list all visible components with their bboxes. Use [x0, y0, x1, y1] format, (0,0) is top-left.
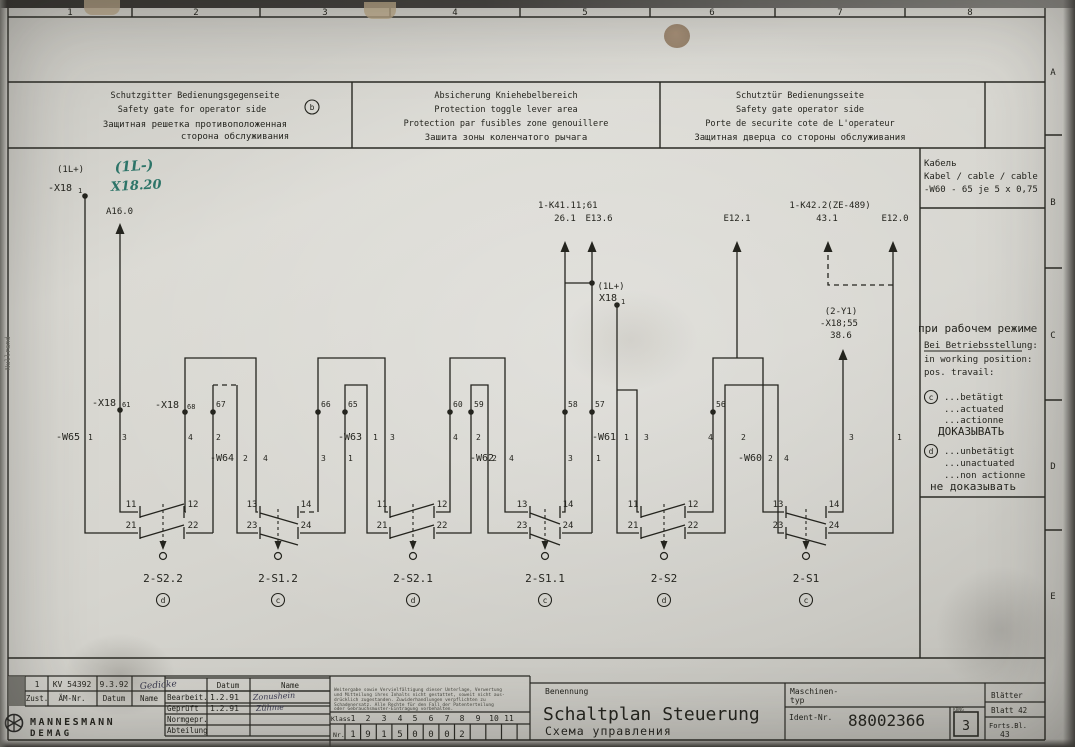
contact-label: 24 — [829, 521, 840, 531]
badge-b: b — [310, 103, 315, 112]
contact-label: 21 — [126, 521, 137, 531]
mid-1lplus-label: (1L+) — [597, 282, 624, 292]
ruler-number: 4 — [452, 8, 457, 18]
klass-number: 6 — [429, 714, 434, 723]
forts-value: 43 — [1000, 730, 1010, 739]
header1-de: Schutzgitter Bedienungsgegenseite — [111, 91, 280, 101]
core-label: 4 — [509, 454, 514, 463]
nr-digit: 0 — [428, 730, 433, 740]
mid-x18-label: X18 — [599, 293, 617, 304]
blaetter-label: Blätter — [991, 691, 1023, 700]
contact-label: 13 — [773, 500, 784, 510]
header3-fr: Porte de securite cote de L'operateur — [705, 119, 894, 129]
core-label: 1 — [348, 454, 353, 463]
header2-de: Absicherung Kniehebelbereich — [434, 91, 577, 101]
a16-label: A16.0 — [106, 207, 133, 217]
handwritten-annotation: (1L-) X18.20 — [109, 157, 162, 195]
cable-labels: -W65 1 3 4 2 -W64 2 4 3 1 -W63 1 3 4 2 -… — [56, 432, 902, 464]
row-letter: D — [1050, 462, 1055, 472]
contact-label: 13 — [517, 500, 528, 510]
switch-name: 2-S1 — [793, 572, 820, 585]
contact-label: 22 — [188, 521, 199, 531]
contact-label: 21 — [377, 521, 388, 531]
row-bearbeit: Bearbeit. — [167, 693, 208, 702]
klass-number: 5 — [413, 714, 418, 723]
header3-ru: Защитная дверца со стороны обслуживания — [694, 132, 905, 143]
terminal-x18-61-sub: 61 — [122, 401, 130, 409]
k41-dest: 26.1 — [554, 214, 576, 224]
handwritten-1l-minus: (1L-) — [114, 157, 154, 176]
switch-state: d — [662, 596, 667, 605]
header-zust: Zust. — [26, 694, 49, 703]
y1-terminal: -X18;55 — [820, 319, 858, 329]
legend-title-en: in working position: — [924, 355, 1032, 365]
company-logo: MANNESMANN DEMAG — [6, 715, 116, 740]
supply-x18-sub: 1 — [78, 187, 82, 195]
klass-number: 7 — [445, 714, 450, 723]
ruler-number: 1 — [67, 8, 72, 18]
ident-label: Ident-Nr. — [789, 713, 832, 722]
circuit-dashed-wires — [213, 250, 893, 512]
revision-number: KV 54392 — [53, 680, 92, 689]
frame-lines — [8, 7, 1062, 740]
contact-label: 24 — [563, 521, 574, 531]
header-box-3: Schutztür Bedienungsseite Safety gate op… — [694, 91, 905, 143]
cable-w64: -W64 — [210, 453, 234, 464]
terminal-57: 57 — [595, 400, 605, 409]
terminal-65: 65 — [348, 400, 358, 409]
stamp-number: 3 — [962, 719, 970, 734]
row-letter: E — [1050, 592, 1055, 602]
core-label: 2 — [216, 433, 221, 442]
header-datum: Datum — [103, 694, 126, 703]
ident-number: 88002366 — [848, 711, 925, 730]
ruler-number: 3 — [322, 8, 327, 18]
k41-label: 1-K41.11;61 — [538, 201, 598, 211]
core-label: 3 — [568, 454, 573, 463]
core-label: 1 — [596, 454, 601, 463]
cable-w62: -W62 — [470, 453, 494, 464]
core-label: 2 — [492, 454, 497, 463]
cable-note-multi: Kabel / cable / cable — [924, 172, 1038, 182]
revision-zust: 1 — [35, 680, 40, 689]
header2-ru: Зашита зоны коленчатого рычага — [425, 133, 588, 143]
source-labels: (1L+) -X18 1 A16.0 1-K41.11;61 26.1 E13.… — [48, 165, 909, 341]
core-label: 1 — [88, 433, 93, 442]
k42-dest: 43.1 — [816, 214, 838, 224]
core-label: 2 — [768, 454, 773, 463]
y1-dest: 38.6 — [830, 331, 852, 341]
legend: при рабочем режиме Bei Betriebsstellung:… — [918, 322, 1038, 493]
title-block-left-cell — [8, 676, 25, 706]
core-label: 3 — [644, 433, 649, 442]
klass-number: 10 — [489, 714, 499, 723]
maschinen-label-1: Maschinen- — [790, 687, 838, 696]
ruler-number: 8 — [967, 8, 972, 18]
header2-en: Protection toggle lever area — [434, 105, 577, 115]
e13-label: E13.6 — [585, 214, 612, 224]
terminal-58: 58 — [568, 400, 578, 409]
switch-name-labels: 2-S2.2 2-S1.2 2-S2.1 2-S1.1 2-S2 2-S1 d … — [143, 572, 819, 607]
core-label: 4 — [708, 433, 713, 442]
contact-label: 12 — [688, 500, 699, 510]
actuator-symbols — [160, 541, 810, 560]
klass-number: 4 — [398, 714, 403, 723]
circuit-wires — [85, 196, 893, 533]
legend-c-symbol: c — [929, 393, 934, 402]
cable-note-ru: Кабель — [924, 158, 957, 169]
contact-label: 11 — [377, 500, 388, 510]
switch-state: d — [161, 596, 166, 605]
legend-c-en: ...actuated — [944, 405, 1004, 415]
cable-w65: -W65 — [56, 432, 80, 443]
contact-label: 11 — [628, 500, 639, 510]
legend-d-symbol: d — [929, 447, 934, 456]
contact-label: 11 — [126, 500, 137, 510]
col-datum: Datum — [217, 681, 240, 690]
y1-label: (2-Y1) — [825, 307, 858, 317]
legend-c-ru: ДОКАЗЫВАТЬ — [938, 425, 1005, 438]
nr-digit: 9 — [365, 730, 370, 740]
legend-d-en: ...unactuated — [944, 459, 1014, 469]
cable-note-spec: -W60 - 65 je 5 x 0,75 — [924, 185, 1038, 195]
terminal-59: 59 — [474, 400, 484, 409]
legend-title-de: Bei Betriebsstellung: — [924, 341, 1038, 351]
switch-state: c — [276, 596, 281, 605]
core-label: 4 — [263, 454, 268, 463]
col-name: Name — [281, 681, 300, 690]
switch-name: 2-S2 — [651, 572, 678, 585]
terminal-66: 66 — [321, 400, 331, 409]
core-label: 3 — [321, 454, 326, 463]
mid-x18-sub: 1 — [621, 298, 625, 306]
ruler-number: 7 — [837, 8, 842, 18]
terminal-x18-68-label: -X18 — [155, 400, 179, 411]
nr-digit: 1 — [381, 730, 386, 740]
revision-date: 9.3.92 — [100, 680, 129, 689]
drawing-title: Schaltplan Steuerung — [543, 704, 760, 725]
klass-number: 1 — [351, 714, 356, 723]
row-geprueft: Geprüft — [167, 704, 199, 713]
contact-number-labels: 11 12 21 22 13 14 23 24 11 12 21 22 13 1… — [126, 500, 840, 531]
margin-note: Nullrand — [4, 336, 12, 370]
legend-d-de: ...unbetätigt — [944, 447, 1014, 457]
stamp-small-label: KBNG — [953, 707, 964, 713]
legend-title-fr: pos. travail: — [924, 368, 994, 378]
switch-state: d — [411, 596, 416, 605]
core-label: 3 — [849, 433, 854, 442]
revision-signature: Gedicke — [140, 679, 178, 692]
header1-ru1: Защитная решетка противоположенная — [103, 120, 287, 130]
legend-title-ru: при рабочем режиме — [918, 322, 1037, 335]
contact-label: 12 — [437, 500, 448, 510]
blatt-label: Blatt 42 — [991, 706, 1027, 715]
core-label: 3 — [122, 433, 127, 442]
contact-label: 23 — [773, 521, 784, 531]
bearbeit-signature: Zonushein — [252, 691, 296, 702]
legend-c-de: ...betätigt — [944, 393, 1004, 403]
header-box-2: Absicherung Kniehebelbereich Protection … — [404, 91, 609, 143]
switch-state: c — [543, 596, 548, 605]
k42-label: 1-K42.2(ZE-489) — [789, 201, 870, 211]
switch-name: 2-S1.2 — [258, 572, 298, 585]
maschinen-label-2: typ — [790, 696, 805, 705]
contact-label: 23 — [247, 521, 258, 531]
drawing-title-ru: Схема управления — [545, 724, 672, 738]
header2-fr: Protection par fusibles zone genouillere — [404, 119, 609, 129]
contact-symbols — [140, 504, 826, 545]
row-letters: A B C D E — [1050, 68, 1056, 602]
switch-name: 2-S2.1 — [393, 572, 433, 585]
nr-label: Nr. — [333, 731, 345, 739]
handwritten-x18-20: X18.20 — [109, 177, 162, 195]
contact-label: 22 — [688, 521, 699, 531]
supply-1lplus-label: (1L+) — [57, 165, 84, 175]
contact-label: 14 — [301, 500, 312, 510]
header-box-1: Schutzgitter Bedienungsgegenseite Safety… — [103, 91, 319, 142]
approval-table: Datum Name Bearbeit. 1.2.91 Zonushein Ge… — [167, 681, 300, 735]
core-label: 2 — [243, 454, 248, 463]
disclaimer-block: Weitergabe sowie Vervielfältigung dieser… — [334, 687, 505, 712]
klass-number: 2 — [366, 714, 371, 723]
header3-en: Safety gate operator side — [736, 105, 864, 115]
nr-digit: 5 — [397, 730, 402, 740]
logo-mark — [7, 715, 21, 731]
contact-label: 14 — [563, 500, 574, 510]
switch-name: 2-S2.2 — [143, 572, 183, 585]
core-label: 2 — [741, 433, 746, 442]
nr-digit: 2 — [459, 730, 464, 740]
geprueft-date: 1.2.91 — [210, 704, 239, 713]
core-label: 4 — [188, 433, 193, 442]
contact-label: 14 — [829, 500, 840, 510]
nr-digit: 0 — [444, 730, 449, 740]
terminal-56: 56 — [716, 400, 726, 409]
e12-1-label: E12.1 — [723, 214, 750, 224]
core-label: 3 — [390, 433, 395, 442]
core-label: 1 — [624, 433, 629, 442]
e12-0-label: E12.0 — [881, 214, 908, 224]
klass-row: Klass. 1 2 3 4 5 6 7 8 9 10 11 Nr. 1 9 1… — [331, 714, 514, 740]
terminal-x18-68-sub: 68 — [187, 403, 195, 411]
nr-digit: 0 — [412, 730, 417, 740]
cable-note: Кабель Kabel / cable / cable -W60 - 65 j… — [924, 158, 1038, 195]
company-name-1: MANNESMANN — [30, 717, 115, 728]
nr-digit: 1 — [350, 730, 355, 740]
contact-label: 22 — [437, 521, 448, 531]
row-letter: C — [1050, 331, 1055, 341]
row-abteilung: Abteilung — [167, 726, 208, 735]
contact-label: 24 — [301, 521, 312, 531]
klass-number: 3 — [382, 714, 387, 723]
supply-x18-label: -X18 — [48, 183, 72, 194]
contact-label: 21 — [628, 521, 639, 531]
ruler-number: 2 — [193, 8, 198, 18]
ruler-number: 6 — [709, 8, 714, 18]
disclaimer-line: oder Gebrauchsmuster-Eintragung vorbehal… — [334, 706, 453, 712]
terminal-labels: -X18 61 -X18 68 67 66 65 60 59 58 57 56 — [92, 398, 726, 411]
core-label: 4 — [453, 433, 458, 442]
header1-en: Safety gate for operator side — [118, 105, 266, 115]
direction-arrows — [116, 223, 898, 360]
header-name: Name — [140, 694, 159, 703]
klass-number: 9 — [476, 714, 481, 723]
contact-label: 23 — [517, 521, 528, 531]
schematic-drawing: 1 2 3 4 5 6 7 8 A B C D E Nullrand Schut… — [0, 0, 1075, 747]
cable-w61: -W61 — [592, 432, 616, 443]
row-letter: A — [1050, 68, 1056, 78]
benennung-label: Benennung — [545, 687, 589, 696]
schematic-photo: 1 2 3 4 5 6 7 8 A B C D E Nullrand Schut… — [0, 0, 1075, 747]
contact-label: 13 — [247, 500, 258, 510]
company-name-2: DEMAG — [30, 729, 72, 739]
terminal-60: 60 — [453, 400, 463, 409]
header3-de: Schutztür Bedienungsseite — [736, 91, 864, 101]
klass-number: 8 — [460, 714, 465, 723]
core-label: 2 — [476, 433, 481, 442]
geprueft-signature: Zühme — [255, 703, 285, 714]
bearbeit-date: 1.2.91 — [210, 693, 239, 702]
row-normgepr: Normgepr. — [167, 715, 208, 724]
cable-w60: -W60 — [738, 453, 762, 464]
header-aend-nr: ÄM-Nr. — [58, 694, 85, 703]
header1-ru2: сторона обслуживания — [181, 131, 289, 142]
terminal-67: 67 — [216, 400, 226, 409]
terminal-x18-61-label: -X18 — [92, 398, 116, 409]
ruler-number: 5 — [582, 8, 587, 18]
switch-name: 2-S1.1 — [525, 572, 565, 585]
cable-w63: -W63 — [338, 432, 362, 443]
legend-d-ru: не доказывать — [930, 480, 1016, 493]
contact-label: 12 — [188, 500, 199, 510]
switch-state: c — [804, 596, 809, 605]
core-label: 1 — [373, 433, 378, 442]
klass-number: 11 — [504, 714, 514, 723]
core-label: 4 — [784, 454, 789, 463]
row-letter: B — [1050, 198, 1055, 208]
core-label: 1 — [897, 433, 902, 442]
forts-label: Forts.Bl. — [989, 722, 1027, 730]
